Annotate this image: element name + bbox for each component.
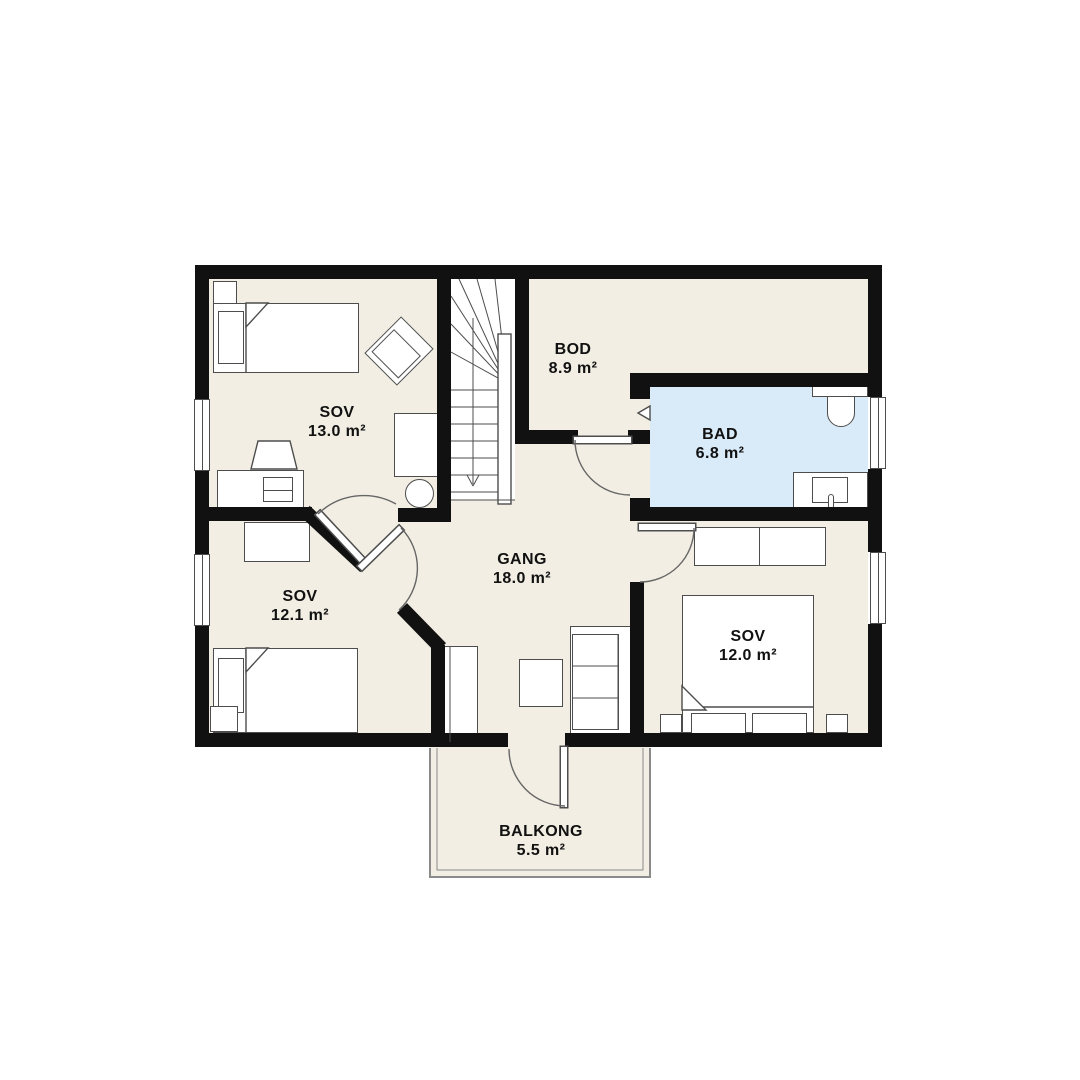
room-label-bod: BOD 8.9 m² [549, 340, 598, 378]
window-bad [870, 397, 886, 469]
wall-bad-south [630, 507, 868, 521]
room-label-gang: GANG 18.0 m² [493, 550, 551, 588]
balcony-door-threshold [508, 733, 565, 747]
toilet-bowl-icon [827, 396, 855, 427]
floor-plan-canvas: SOV 13.0 m² BOD 8.9 m² BAD 6.8 m² GANG 1… [0, 0, 1080, 1080]
window-sov120 [870, 552, 886, 624]
room-label-bad: BAD 6.8 m² [696, 425, 745, 463]
room-name: SOV [308, 403, 366, 422]
pillow-icon [218, 658, 244, 713]
pillow-icon [218, 311, 244, 364]
wall-outer-bottom-right [565, 733, 882, 747]
room-name: GANG [493, 550, 551, 569]
window-sov121 [194, 554, 210, 626]
room-name: SOV [271, 587, 329, 606]
wall-sov121-east [431, 645, 445, 747]
wall-alcove-stub [398, 508, 451, 522]
desk-monitor-icon [263, 477, 293, 502]
wall-outer-bottom-left [195, 733, 508, 747]
table-icon [519, 659, 563, 707]
wall-outer-top [195, 265, 882, 279]
wardrobe-icon [694, 527, 826, 566]
cabinet-icon [443, 646, 478, 743]
wall-left-divider [195, 507, 312, 521]
dresser-icon [244, 522, 310, 562]
wardrobe-icon [394, 413, 438, 477]
room-label-sov-12-1: SOV 12.1 m² [271, 587, 329, 625]
desk-monitor-divider [264, 490, 292, 491]
wardrobe-divider [759, 528, 760, 565]
wall-outer-left-a [195, 265, 209, 399]
wall-outer-right-b [868, 469, 882, 552]
room-area: 18.0 m² [493, 569, 551, 588]
wall-bad-node [628, 430, 650, 444]
wall-outer-left-c [195, 626, 209, 747]
nightstand-icon [826, 714, 848, 733]
wall-sov120-west [630, 582, 644, 733]
room-label-balkong: BALKONG 5.5 m² [499, 822, 583, 860]
nightstand-icon [660, 714, 682, 733]
nightstand-icon [213, 281, 237, 304]
room-area: 12.0 m² [719, 646, 777, 665]
sofa-cushions [572, 634, 619, 730]
room-name: BOD [549, 340, 598, 359]
room-area: 13.0 m² [308, 422, 366, 441]
room-name: BALKONG [499, 822, 583, 841]
room-name: BAD [696, 425, 745, 444]
window-sov13 [194, 399, 210, 471]
wall-bad-top [630, 373, 868, 387]
wall-stairs-left [437, 265, 451, 513]
room-label-sov-13: SOV 13.0 m² [308, 403, 366, 441]
room-name: SOV [719, 627, 777, 646]
room-label-sov-12-0: SOV 12.0 m² [719, 627, 777, 665]
room-area: 6.8 m² [696, 444, 745, 463]
wall-bod-south [515, 430, 578, 444]
stool-icon [405, 479, 434, 508]
wall-outer-right-c [868, 624, 882, 747]
wall-stairs-right [515, 265, 529, 444]
wall-outer-right-a [868, 265, 882, 397]
room-area: 8.9 m² [549, 359, 598, 378]
nightstand-icon [210, 706, 238, 732]
room-area: 5.5 m² [499, 841, 583, 860]
floor-stairwell [451, 279, 515, 500]
wall-bad-left-top [630, 387, 650, 399]
room-area: 12.1 m² [271, 606, 329, 625]
